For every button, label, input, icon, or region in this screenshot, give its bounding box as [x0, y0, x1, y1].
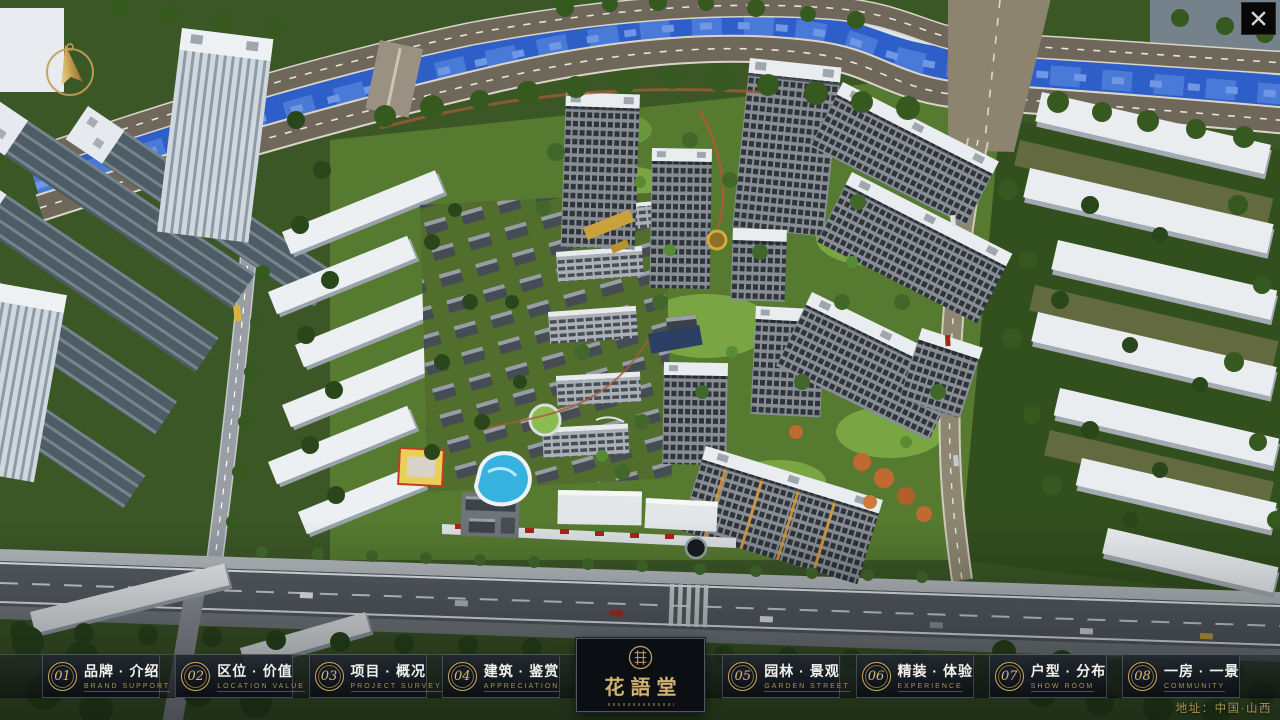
brand-name: 花語堂	[599, 671, 683, 700]
nav-label-en: SHOW ROOM	[1031, 683, 1095, 692]
nav-label-zh: 园林 · 景观	[764, 661, 834, 681]
item-number-badge: 01	[48, 662, 77, 691]
vignette	[0, 0, 1280, 720]
item-number-badge: 03	[315, 662, 344, 691]
brand-seal-icon	[628, 645, 653, 670]
brand-logo-panel[interactable]: 花語堂	[576, 638, 705, 712]
nav-label-zh: 区位 · 价值	[217, 661, 287, 681]
nav-label-en: COMMUNITY	[1164, 683, 1225, 692]
nav-item-garden-landscape[interactable]: 05 园林 · 景观 GARDEN STREET	[722, 654, 840, 698]
item-number-badge: 08	[1128, 662, 1157, 691]
nav-label-en: PROJECT SURVEY	[351, 683, 442, 692]
item-number-badge: 05	[728, 662, 757, 691]
close-icon	[1250, 10, 1267, 27]
nav-label-en: LOCATION VALUE	[217, 683, 305, 692]
item-number-badge: 04	[448, 662, 477, 691]
nav-label-zh: 一房 · 一景	[1164, 661, 1234, 681]
nav-item-brand-intro[interactable]: 01 品牌 · 介绍 BRAND SUPPORT	[42, 654, 160, 698]
nav-item-room-view[interactable]: 08 一房 · 一景 COMMUNITY	[1122, 654, 1240, 698]
masterplan-viewport[interactable]	[0, 0, 1280, 720]
nav-label-zh: 精装 · 体验	[898, 661, 968, 681]
nav-label-zh: 户型 · 分布	[1031, 661, 1101, 681]
close-button[interactable]	[1241, 2, 1276, 35]
aerial-map-render	[0, 0, 1280, 720]
nav-item-project-survey[interactable]: 03 项目 · 概况 PROJECT SURVEY	[309, 654, 427, 698]
item-number-badge: 06	[862, 662, 891, 691]
nav-label-en: APPRECIATION	[484, 683, 560, 692]
nav-label-en: EXPERIENCE	[898, 683, 963, 692]
brand-subtitle-rule	[608, 703, 674, 706]
item-number-badge: 02	[181, 662, 210, 691]
item-number-badge: 07	[995, 662, 1024, 691]
nav-item-architecture[interactable]: 04 建筑 · 鉴赏 APPRECIATION	[442, 654, 560, 698]
nav-label-zh: 建筑 · 鉴赏	[484, 661, 554, 681]
address-label: 地址：中国·山西	[1176, 700, 1272, 716]
nav-label-zh: 项目 · 概况	[351, 661, 421, 681]
nav-item-location-value[interactable]: 02 区位 · 价值 LOCATION VALUE	[175, 654, 293, 698]
nav-item-decoration-experience[interactable]: 06 精装 · 体验 EXPERIENCE	[856, 654, 974, 698]
nav-label-en: GARDEN STREET	[764, 683, 850, 692]
nav-item-floorplan-distribution[interactable]: 07 户型 · 分布 SHOW ROOM	[989, 654, 1107, 698]
nav-label-zh: 品牌 · 介绍	[84, 661, 154, 681]
nav-label-en: BRAND SUPPORT	[84, 683, 170, 692]
